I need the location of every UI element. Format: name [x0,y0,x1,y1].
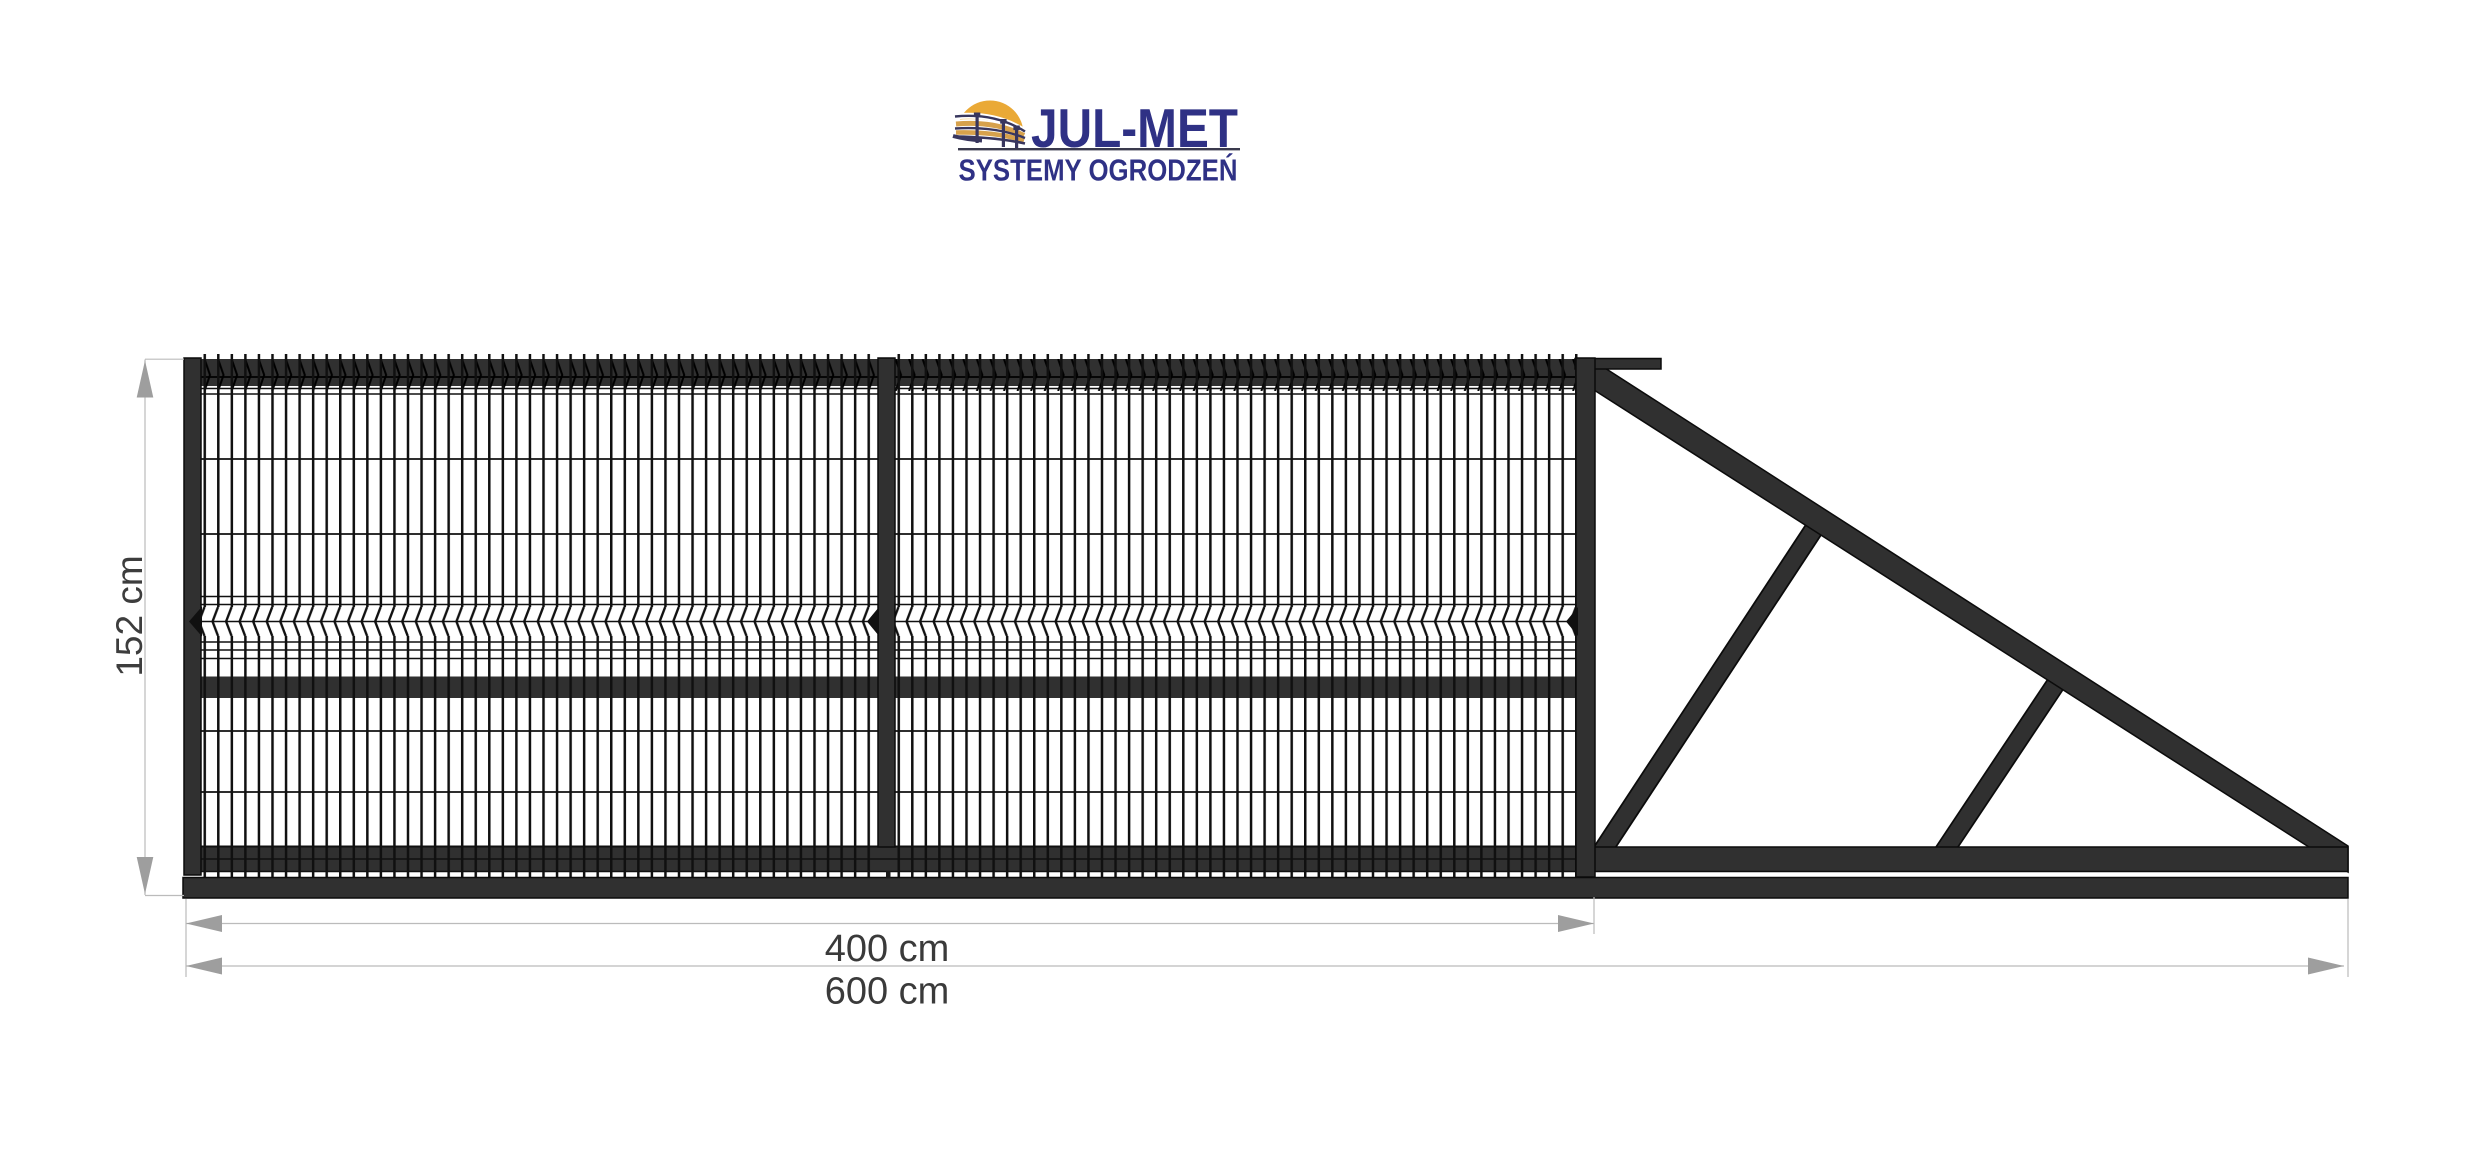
svg-text:SYSTEMY OGRODZEŃ: SYSTEMY OGRODZEŃ [959,153,1238,188]
svg-text:152 cm: 152 cm [109,555,150,676]
svg-text:600 cm: 600 cm [825,971,950,1013]
svg-text:400 cm: 400 cm [825,928,950,970]
